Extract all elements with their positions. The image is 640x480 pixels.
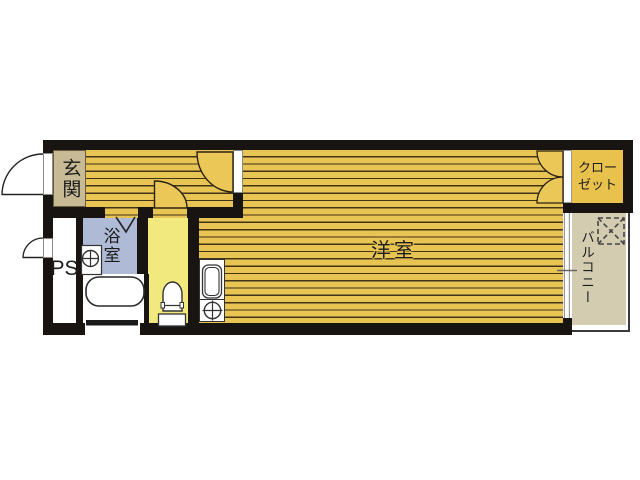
closet-label-line2: ゼット xyxy=(578,177,617,193)
wall-bath-toilet-a xyxy=(137,218,148,274)
balcony-label: バルコニー xyxy=(572,214,599,320)
bath-wall-window-gap xyxy=(85,323,140,335)
closet-label: クロー ゼット xyxy=(572,150,623,203)
wall-window-stub xyxy=(563,318,572,335)
closet-doorway xyxy=(563,150,572,203)
wall-hall-stub xyxy=(233,193,243,218)
entrance-door-leaf xyxy=(43,153,53,195)
closet-label-line1: クロー xyxy=(578,160,617,176)
wall-bottom-a xyxy=(43,323,85,335)
wall-top xyxy=(43,140,633,150)
kitchen-counter xyxy=(199,259,225,322)
ps-door-swing-icon xyxy=(23,238,43,258)
western-room-label: 洋室 xyxy=(344,239,444,263)
wall-bottom-b xyxy=(140,323,572,335)
entrance-door-swing-icon xyxy=(2,154,43,195)
wall-under-closet xyxy=(563,203,633,213)
wall-hall-b xyxy=(138,207,153,218)
wall-left-a xyxy=(43,140,53,153)
wall-bath-toilet-b xyxy=(144,274,149,323)
toilet-room-floor xyxy=(148,218,188,323)
genkan-label: 玄関 xyxy=(53,150,86,207)
balcony-window xyxy=(563,213,572,318)
wall-hall-a xyxy=(43,207,105,218)
ps-label: PS xyxy=(46,256,83,282)
floor-plan: 玄関 PS 浴室 洋室 クロー ゼット バルコニー xyxy=(0,0,640,480)
room-door-leaf xyxy=(233,150,243,193)
bathroom-label: 浴室 xyxy=(83,218,137,274)
bathtub-area xyxy=(83,274,144,323)
wall-toilet-main xyxy=(188,218,199,323)
